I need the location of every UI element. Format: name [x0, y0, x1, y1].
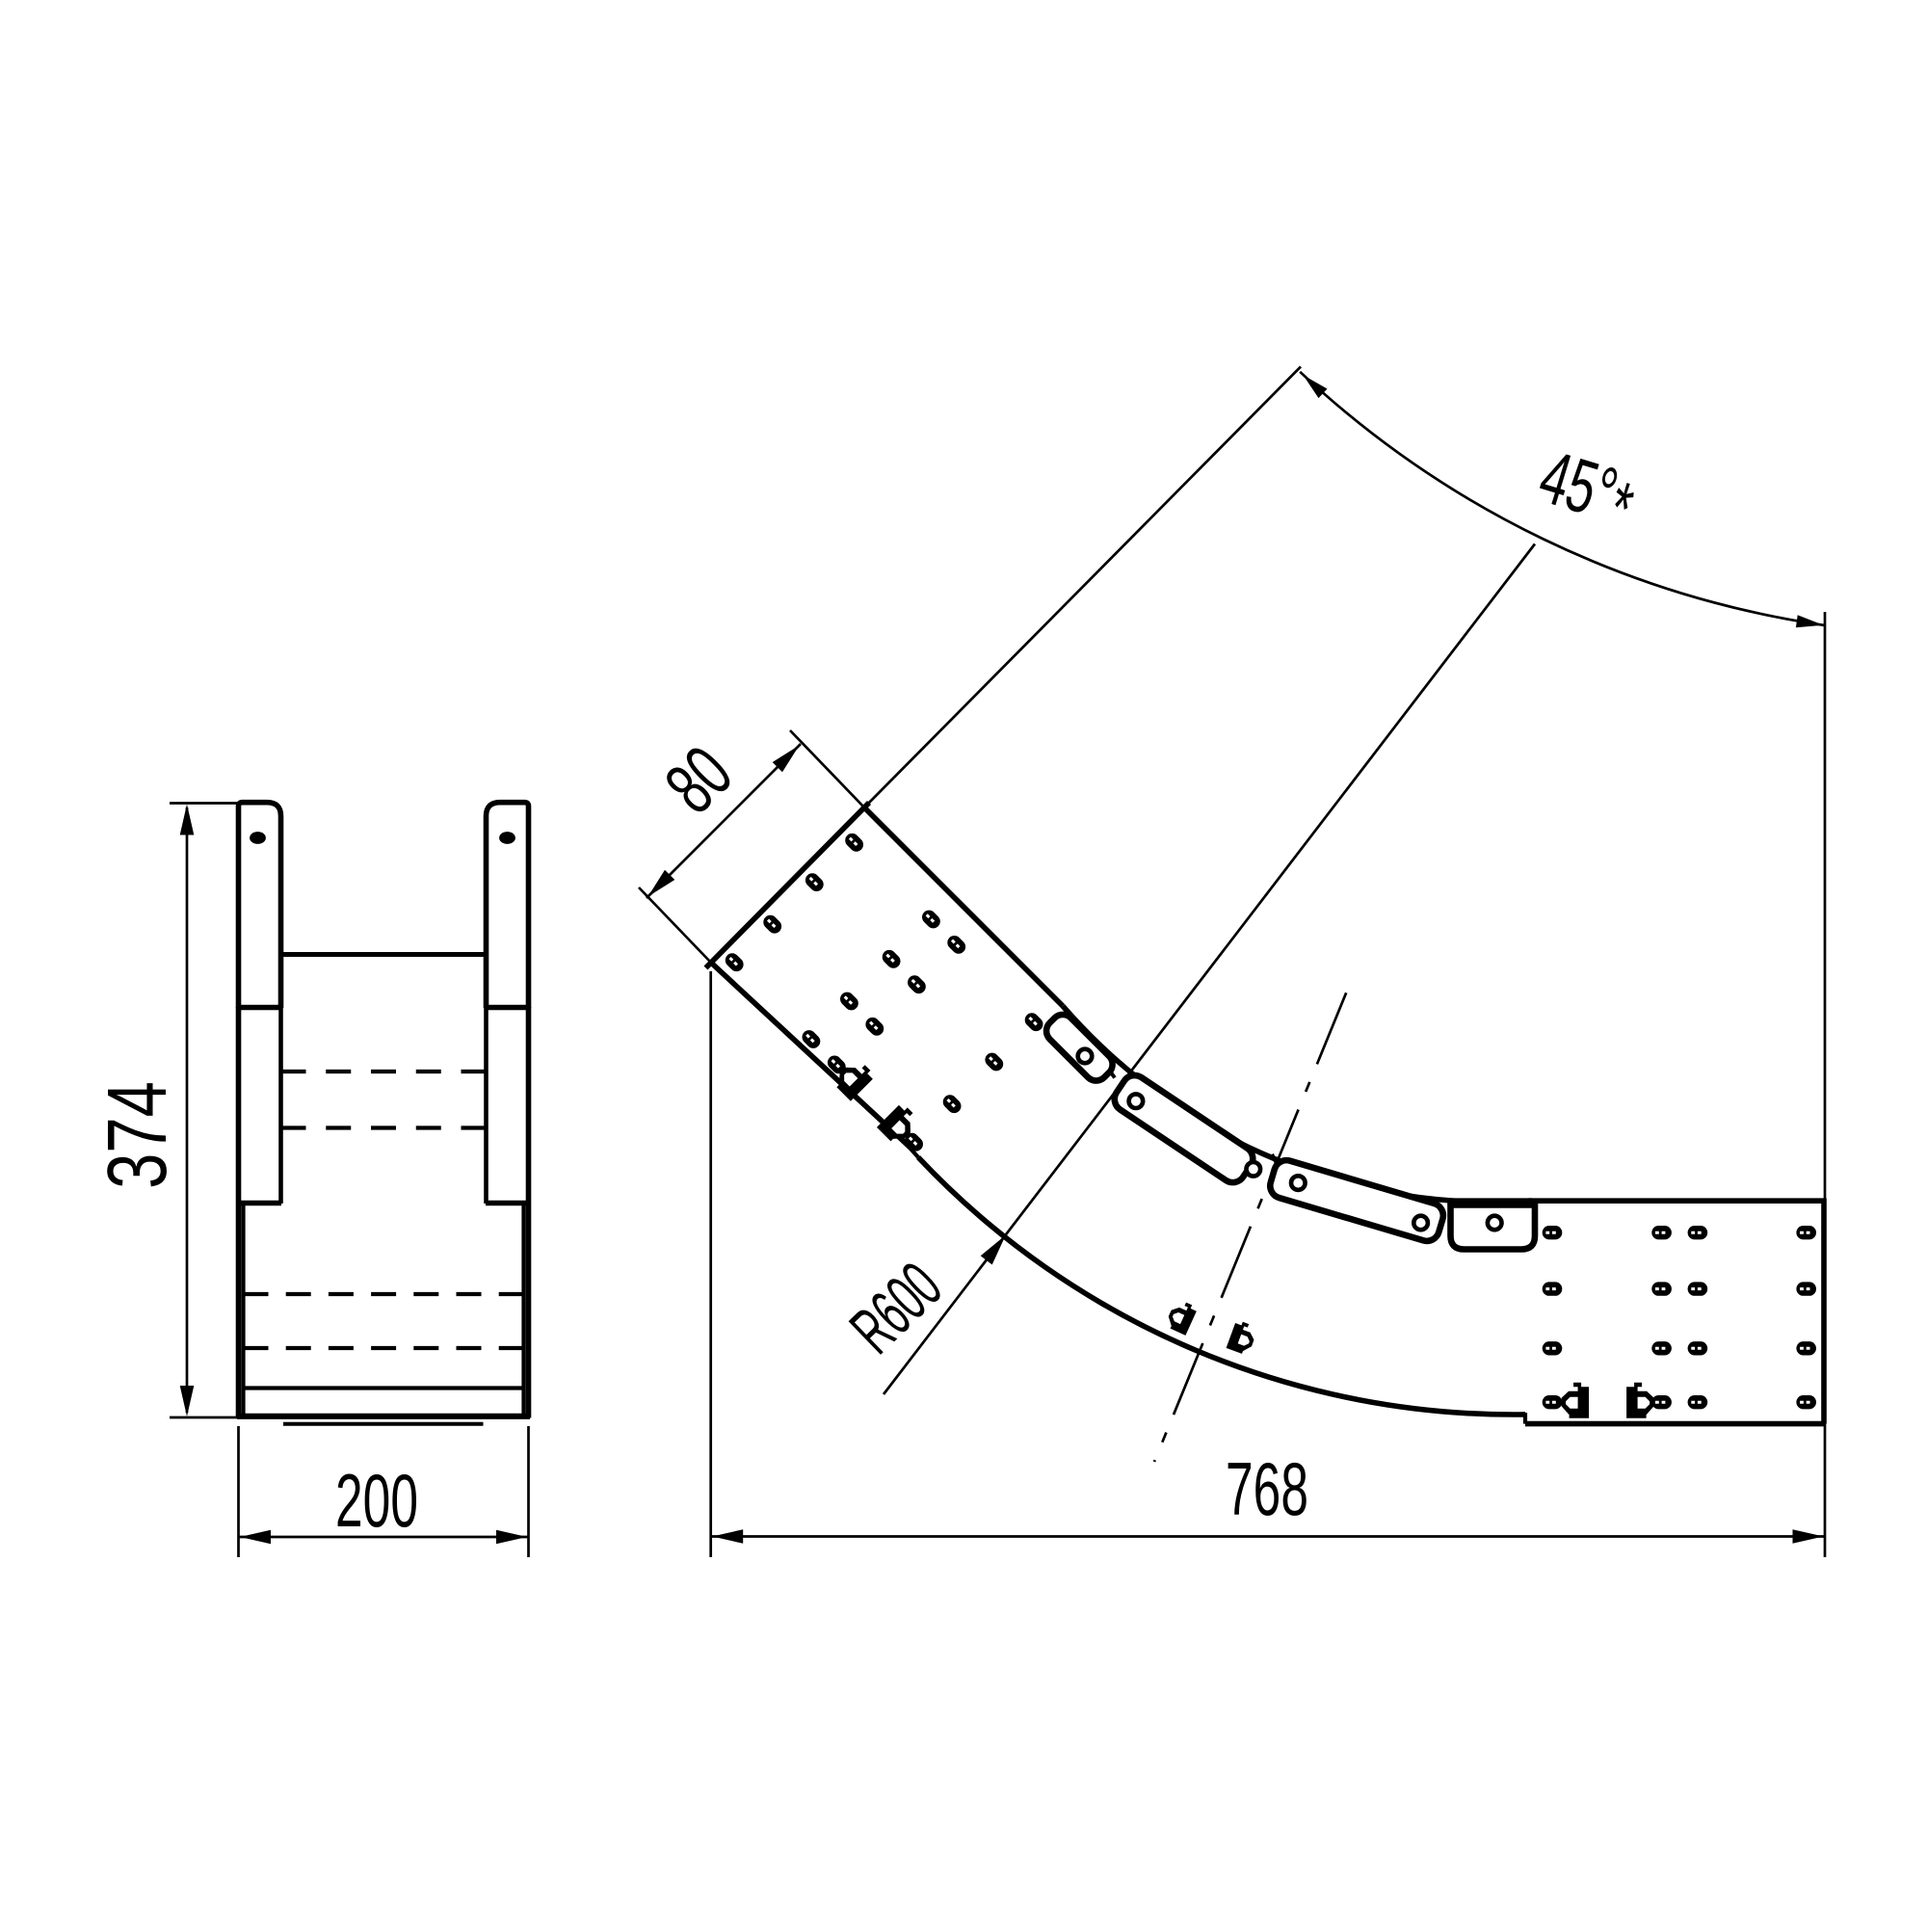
svg-text:374: 374	[92, 1081, 184, 1189]
svg-text:200: 200	[335, 1459, 418, 1543]
svg-text:768: 768	[1226, 1447, 1308, 1531]
